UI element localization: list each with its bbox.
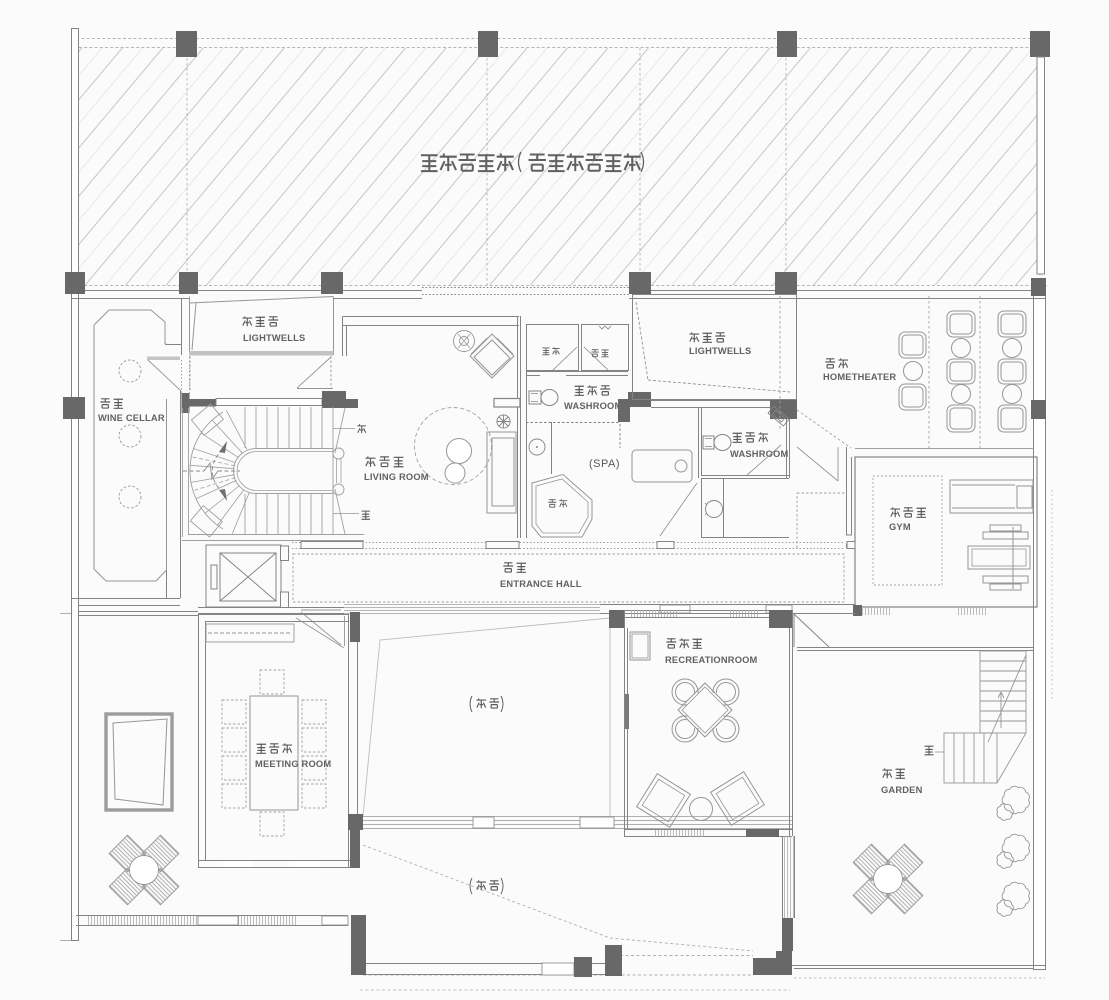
svg-text:GARDEN: GARDEN — [881, 785, 923, 795]
svg-text:WINE CELLAR: WINE CELLAR — [98, 413, 165, 423]
svg-text:LIVING ROOM: LIVING ROOM — [364, 472, 429, 482]
svg-text:RECREATIONROOM: RECREATIONROOM — [665, 655, 758, 665]
svg-text:WASHROOM: WASHROOM — [730, 449, 788, 459]
svg-text:MEETING ROOM: MEETING ROOM — [255, 759, 331, 769]
svg-text:(SPA): (SPA) — [589, 458, 620, 470]
svg-text:GYM: GYM — [889, 522, 911, 532]
svg-text:LIGHTWELLS: LIGHTWELLS — [243, 333, 305, 343]
svg-text:LIGHTWELLS: LIGHTWELLS — [689, 346, 751, 356]
svg-text:ENTRANCE HALL: ENTRANCE HALL — [500, 579, 582, 589]
svg-text:WASHROOM: WASHROOM — [564, 401, 622, 411]
svg-text:HOMETHEATER: HOMETHEATER — [823, 372, 896, 382]
